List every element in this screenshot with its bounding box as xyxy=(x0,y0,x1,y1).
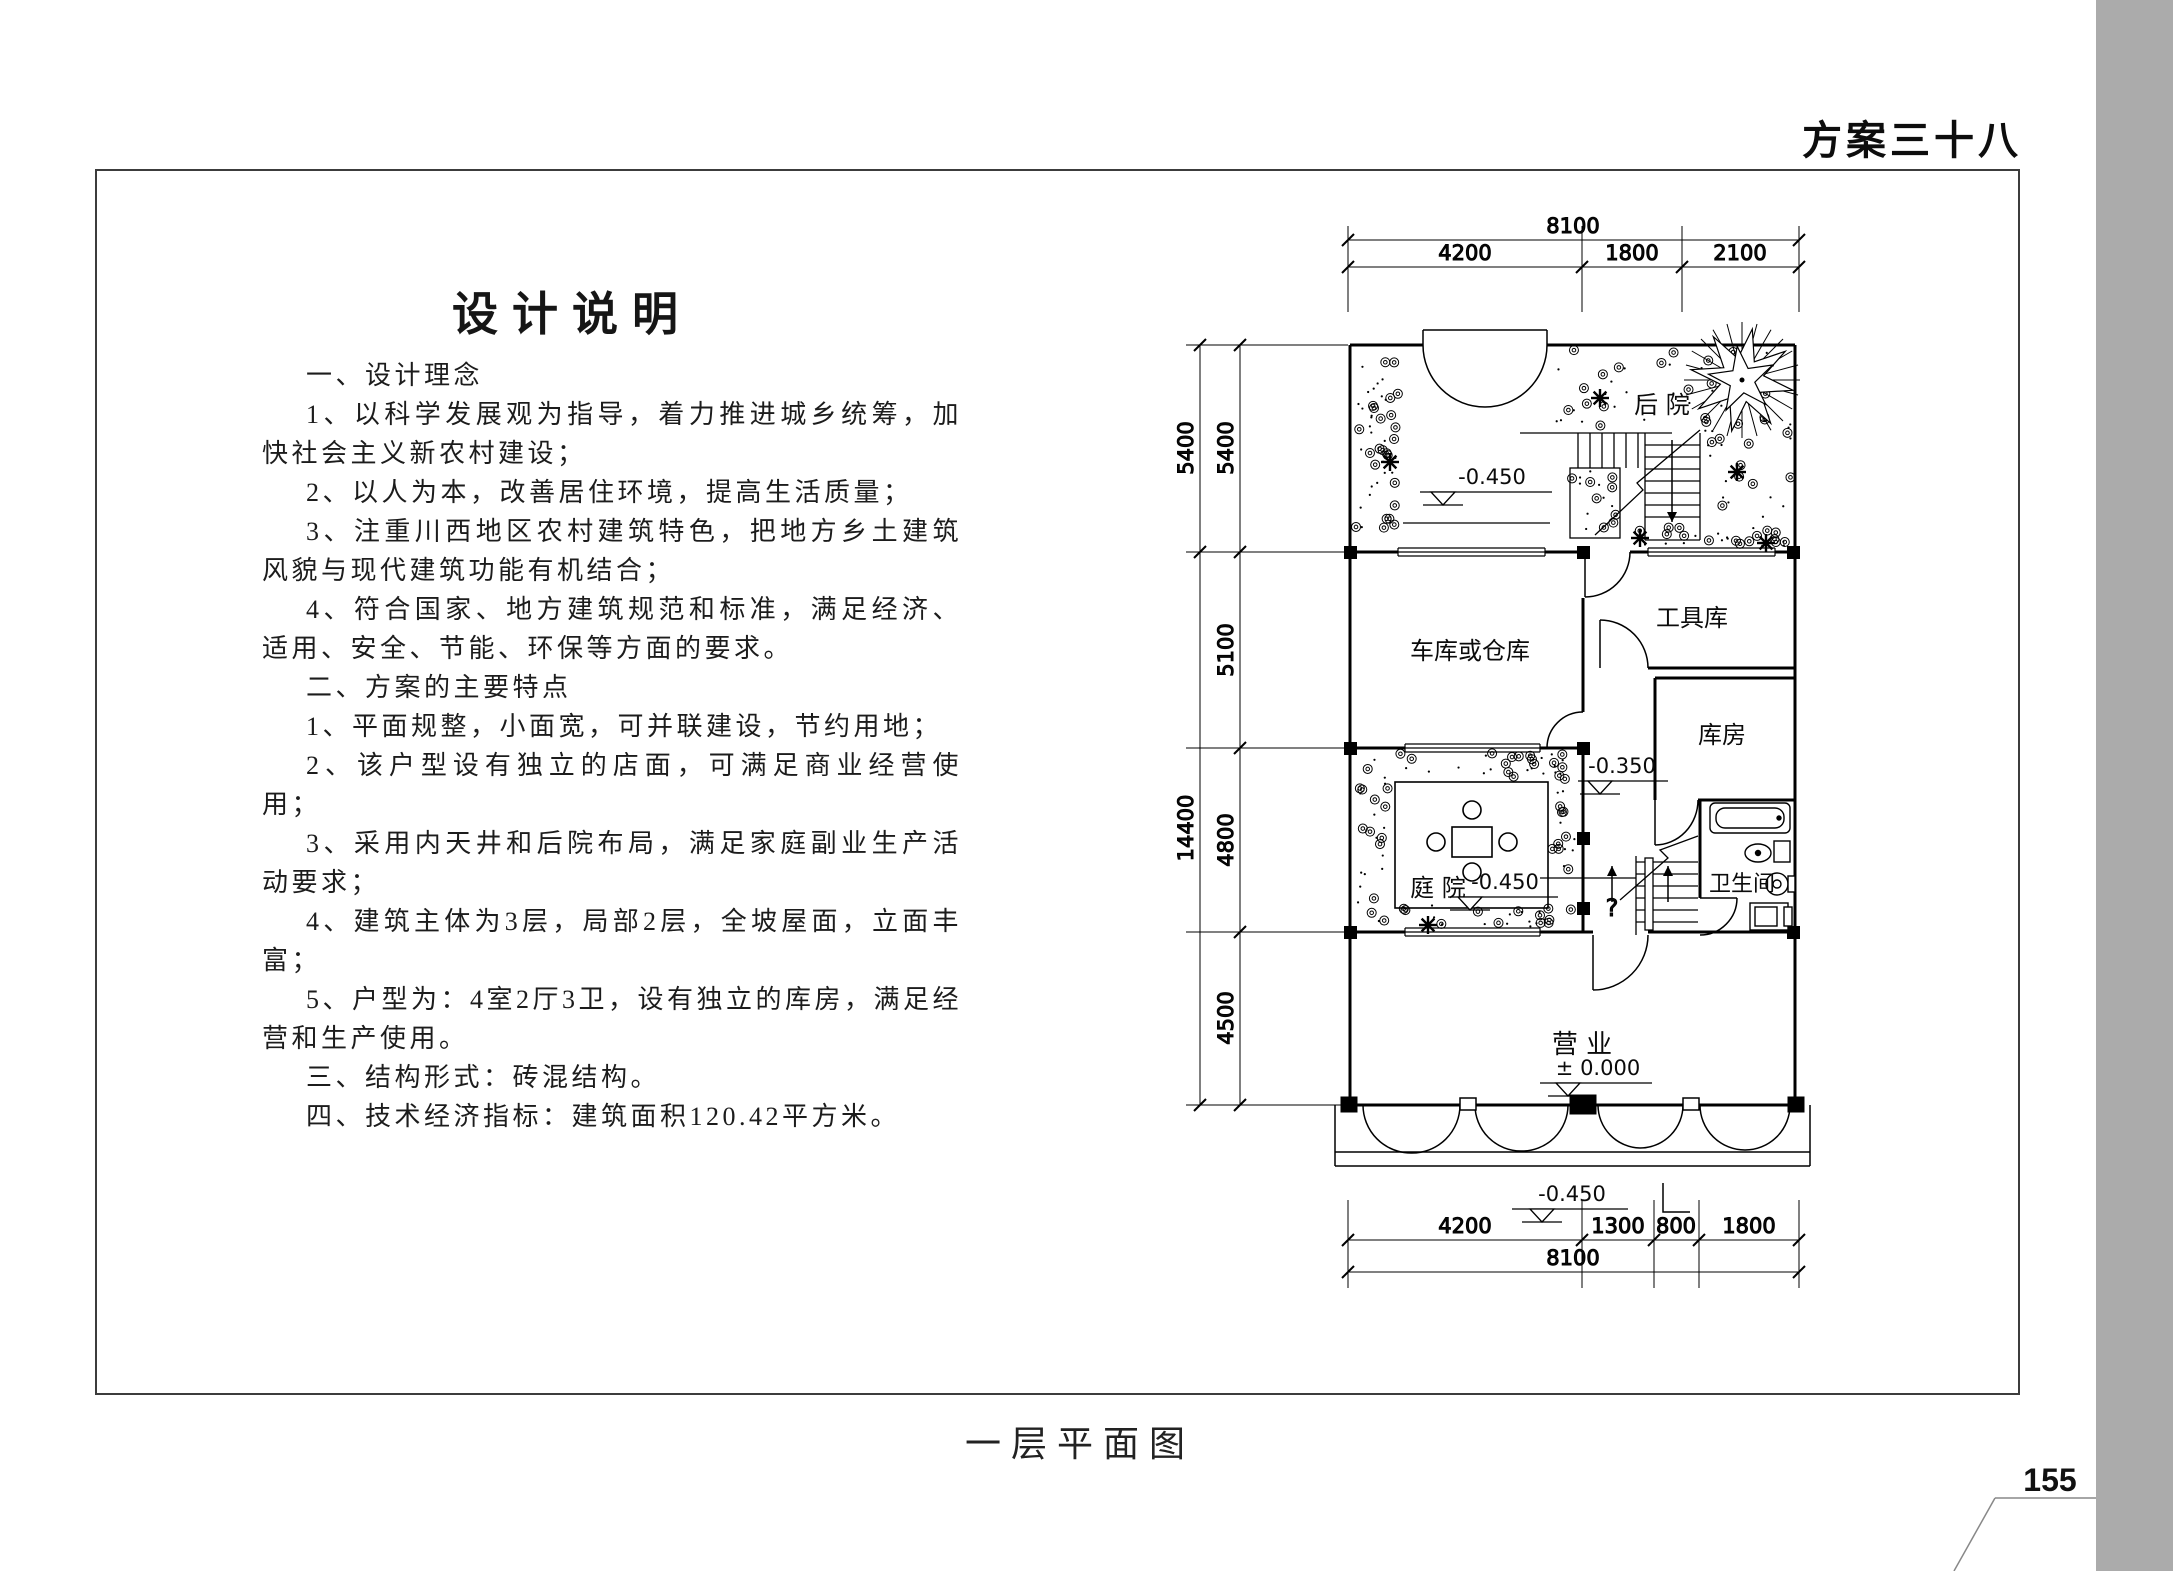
dim-left-inner-3: 4800 xyxy=(1214,813,1238,866)
design-notes-title: 设计说明 xyxy=(262,278,882,344)
design-notes-paragraph: 3、注重川西地区农村建筑特色，把地方乡土建筑风貌与现代建筑功能有机结合； xyxy=(262,512,962,590)
design-notes-paragraph: 一、设计理念 xyxy=(262,356,962,395)
design-notes-paragraph: 4、建筑主体为3层，局部2层，全坡屋面，立面丰富； xyxy=(262,902,962,980)
room-label-backyard: 后 院 xyxy=(1634,391,1690,419)
design-notes-paragraph: 2、以人为本，改善居住环境，提高生活质量； xyxy=(262,473,962,512)
dim-left-inner-2: 5100 xyxy=(1214,623,1238,676)
level-upper: -0.450 xyxy=(1458,465,1526,489)
level-porch: -0.450 xyxy=(1538,1182,1606,1206)
dim-left-inner-4: 4500 xyxy=(1214,991,1238,1044)
dim-left-outer-2: 14400 xyxy=(1174,795,1198,862)
dim-left-outer-1: 5400 xyxy=(1174,421,1198,474)
level-shop: ± 0.000 xyxy=(1556,1056,1640,1080)
room-label-bathroom: 卫生间 xyxy=(1709,872,1775,897)
dim-top-total: 8100 xyxy=(1546,214,1599,238)
room-label-courtyard: 庭 院 xyxy=(1410,874,1466,902)
dim-bottom-total: 8100 xyxy=(1546,1246,1599,1270)
room-label-tool: 工具库 xyxy=(1656,604,1728,632)
stair-direction-mark: ? xyxy=(1606,894,1619,922)
plan-caption: 一层平面图 xyxy=(880,1415,1280,1467)
design-notes-body: 一、设计理念1、以科学发展观为指导，着力推进城乡统筹，加快社会主义新农村建设；2… xyxy=(262,356,962,1136)
design-notes-paragraph: 1、以科学发展观为指导，着力推进城乡统筹，加快社会主义新农村建设； xyxy=(262,395,962,473)
room-label-garage: 车库或仓库 xyxy=(1410,637,1530,665)
design-notes-paragraph: 5、户型为：4室2厅3卫，设有独立的库房，满足经营和生产使用。 xyxy=(262,980,962,1058)
room-label-storeroom: 库房 xyxy=(1698,721,1746,749)
dim-bottom-4: 1800 xyxy=(1722,1214,1775,1238)
floor-plan-drawing: 8100 4200 1800 2100 5400 14400 5400 5100… xyxy=(1140,130,1860,1330)
dim-left-inner-1: 5400 xyxy=(1214,421,1238,474)
design-notes-paragraph: 四、技术经济指标：建筑面积120.42平方米。 xyxy=(262,1097,962,1136)
corner-decoration xyxy=(1940,1490,2100,1571)
design-notes-paragraph: 3、采用内天井和后院布局，满足家庭副业生产活动要求； xyxy=(262,824,962,902)
dim-top-3: 2100 xyxy=(1713,241,1766,265)
design-notes-paragraph: 4、符合国家、地方建筑规范和标准，满足经济、适用、安全、节能、环保等方面的要求。 xyxy=(262,590,962,668)
design-notes-paragraph: 2、该户型设有独立的店面，可满足商业经营使用； xyxy=(262,746,962,824)
dim-bottom-2: 1300 xyxy=(1591,1214,1644,1238)
dim-top-1: 4200 xyxy=(1438,241,1491,265)
book-page: 方案三十八 设计说明 一、设计理念1、以科学发展观为指导，着力推进城乡统筹，加快… xyxy=(0,0,2173,1571)
dim-bottom-3: 800 xyxy=(1656,1214,1696,1238)
design-notes-paragraph: 三、结构形式：砖混结构。 xyxy=(262,1058,962,1097)
dim-bottom-1: 4200 xyxy=(1438,1214,1491,1238)
level-hall: -0.350 xyxy=(1588,754,1656,778)
design-notes-paragraph: 二、方案的主要特点 xyxy=(262,668,962,707)
design-notes-paragraph: 1、平面规整，小面宽，可并联建设，节约用地； xyxy=(262,707,962,746)
dim-top-2: 1800 xyxy=(1605,241,1658,265)
page-edge-gray-bar xyxy=(2096,0,2173,1571)
level-courtyard: -0.450 xyxy=(1471,870,1539,894)
